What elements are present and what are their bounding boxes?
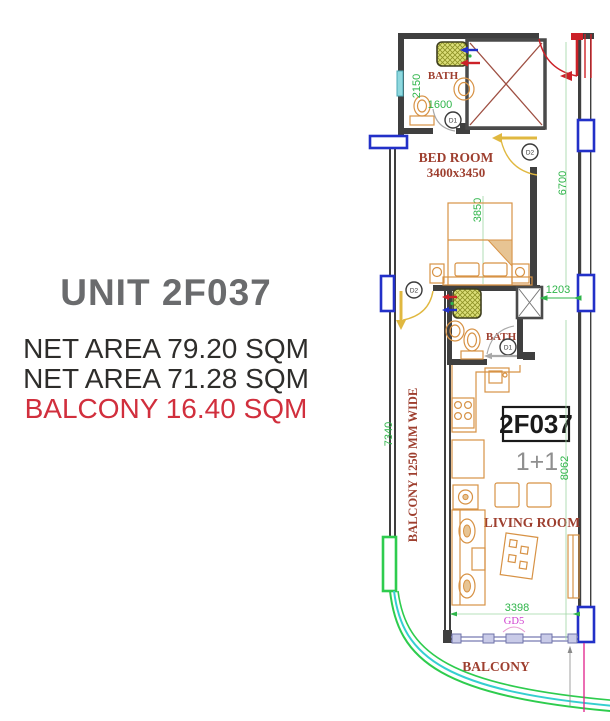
armchair-2 <box>527 483 551 507</box>
bedroom-right-wall <box>530 167 537 287</box>
window-right-lower <box>578 607 594 642</box>
balcony-outer-wall-a <box>389 148 391 537</box>
toilet-upper-tank <box>410 116 434 125</box>
shaft-lower <box>517 287 542 318</box>
rug-motif-2-icon <box>520 546 528 554</box>
bed-blanket-fold <box>488 240 512 266</box>
balcony-side-label: BALCONY 1250 MM WIDE <box>406 388 420 543</box>
sliding-door <box>451 627 578 643</box>
dim-7340: 7340 <box>383 422 395 446</box>
rug <box>500 533 538 579</box>
balcony: BALCONY 1250 MM WIDE 7340 BALCONY <box>383 388 610 713</box>
toilet-lower-bowl <box>464 329 480 351</box>
dim-6700: 6700 <box>557 171 569 195</box>
unit-type: 1+1 <box>516 448 558 476</box>
window-right-upper <box>578 120 594 151</box>
rug-motif-4-icon <box>519 561 527 569</box>
balcony-outer-wall-b <box>394 148 396 537</box>
lamp-left-icon <box>433 268 442 277</box>
bath-upper-bottom-wall-a <box>398 128 433 134</box>
dim-1203: 1203 <box>546 284 570 296</box>
top-wall-left <box>398 33 539 39</box>
gd5-tag: GD5 <box>504 616 524 627</box>
living-room: LIVING ROOM <box>452 483 580 605</box>
lamp-right-icon <box>516 268 525 277</box>
living-left-wall-a <box>444 291 446 633</box>
dim-1600: 1600 <box>428 99 452 111</box>
window-balcony-wall <box>381 276 394 311</box>
entry-door <box>539 33 591 81</box>
door-label-d2-balcony: D2 <box>410 288 419 295</box>
armchair-1 <box>495 483 519 507</box>
floor-plan-sheet: UNIT 2F037 NET AREA 79.20 SQM NET AREA 7… <box>0 0 610 721</box>
bath-lower-right-wall <box>517 318 523 359</box>
sofa-table <box>472 548 485 570</box>
kitchen-faucet-icon <box>503 373 507 377</box>
bath-upper-label: BATH <box>428 70 459 82</box>
dim-3850: 3850 <box>472 198 484 222</box>
dim-3398: 3398 <box>505 602 529 614</box>
kitchen-cabinet <box>452 440 484 478</box>
balcony-door: D2 <box>396 282 433 330</box>
bath-lower: BATH D1 <box>442 289 517 359</box>
rug-outline <box>500 533 538 579</box>
sliding-door-panel-1 <box>452 634 461 643</box>
nightstand-left <box>430 264 444 283</box>
dim-8062: 8062 <box>559 456 571 480</box>
window-teal-bath <box>397 71 403 96</box>
bath-lower-bottom-wall <box>447 359 487 365</box>
gd5-arc <box>503 627 525 632</box>
window-right-middle <box>578 275 594 311</box>
bath-lower-corner-stub <box>523 352 535 360</box>
door-label-d1-lower: D1 <box>504 345 513 352</box>
nightstand-right <box>512 264 529 283</box>
toilet-lower-seat <box>468 333 477 347</box>
valve-dot-icon <box>468 54 471 57</box>
shaft-upper <box>467 40 545 128</box>
bedroom-door-arrow-icon <box>492 133 502 143</box>
bedroom-label: BED ROOM <box>419 150 494 165</box>
balcony-door-arrow-icon <box>396 320 406 330</box>
door-label-d2-bedroom: D2 <box>526 150 535 157</box>
side-unit-dot-icon <box>463 494 468 499</box>
stove-burner-2-icon <box>465 402 472 409</box>
bed-pillow-left <box>455 263 479 276</box>
entry-door-frame-top <box>571 33 583 40</box>
sliding-door-panel-5 <box>568 634 577 643</box>
sliding-door-panel-3 <box>506 634 523 643</box>
valve-dot-lower-icon <box>450 302 453 305</box>
sliding-door-panel-4 <box>541 634 552 643</box>
unit-number: 2F037 <box>499 409 573 439</box>
sofa <box>452 510 485 605</box>
stove-burner-3-icon <box>455 413 462 420</box>
stove-burner-4-icon <box>465 413 472 420</box>
door-label-d1-upper: D1 <box>449 118 458 125</box>
rug-motif-1-icon <box>509 540 517 548</box>
toilet-lower-tank <box>461 351 483 359</box>
sofa-cushion-1-inner <box>464 525 471 537</box>
dim-2150: 2150 <box>411 74 423 98</box>
shower-lower <box>453 289 481 318</box>
sofa-cushion-2-inner <box>464 580 471 592</box>
bedroom-size-label: 3400x3450 <box>427 165 486 180</box>
sliding-door-panel-2 <box>483 634 494 643</box>
stove-burner-1-icon <box>455 402 462 409</box>
rug-motif-3-icon <box>508 555 516 563</box>
bed-headboard <box>443 277 532 285</box>
window-top-left <box>370 136 407 148</box>
bath-lower-door-arrow-icon <box>484 353 492 359</box>
toilet-upper-seat <box>418 100 427 112</box>
living-bottom-left-stub <box>443 630 452 643</box>
balcony-opening-green <box>383 537 396 591</box>
bed-pillow-right <box>483 263 507 276</box>
bedroom: BED ROOM 3400x3450 3850 <box>419 150 532 285</box>
floor-plan-drawing: D2 D2 D1 BATH 2150 <box>0 0 610 721</box>
kitchen-sink-bowl <box>489 371 502 383</box>
balcony-bottom-label: BALCONY <box>462 659 530 674</box>
